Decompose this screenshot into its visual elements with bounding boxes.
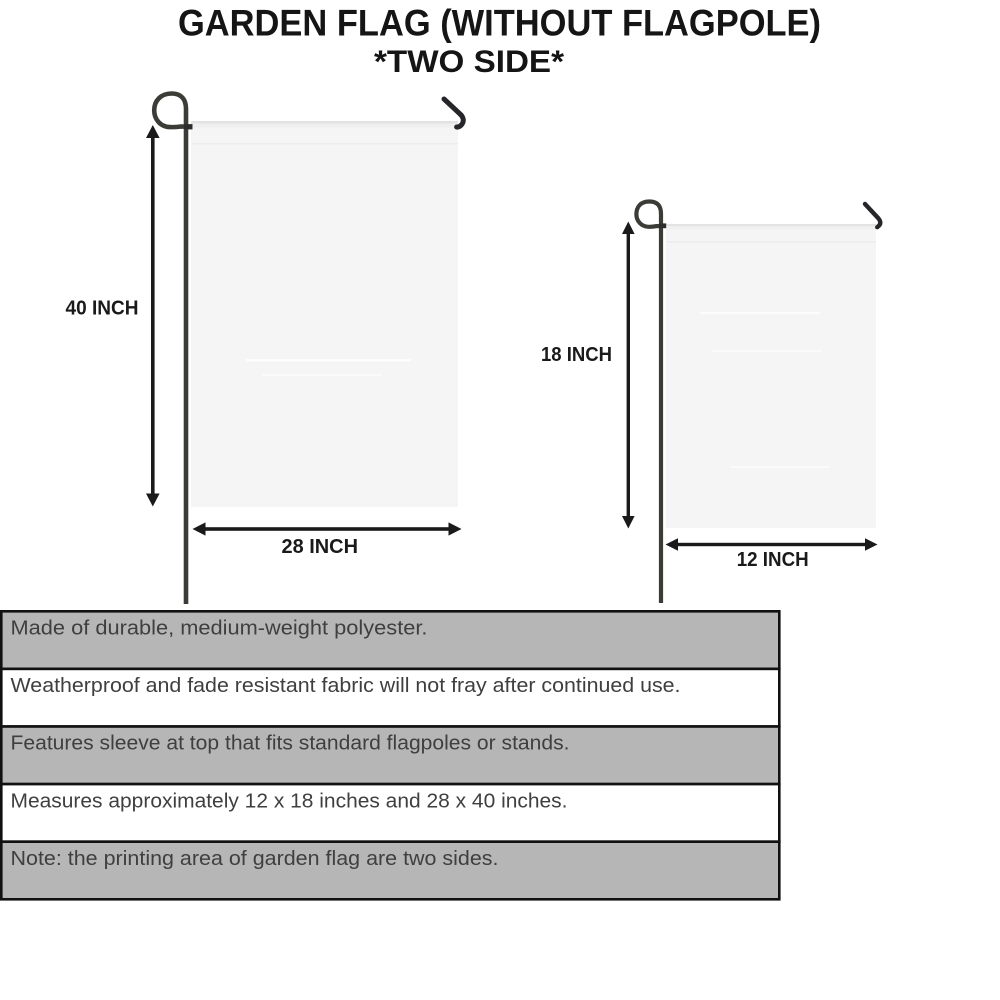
svg-text:Made of durable, medium-weight: Made of durable, medium-weight polyester…: [11, 617, 428, 640]
svg-text:12 INCH: 12 INCH: [737, 548, 809, 571]
svg-text:28 INCH: 28 INCH: [282, 535, 359, 558]
svg-text:40 INCH: 40 INCH: [66, 297, 139, 320]
svg-text:Measures approximately 12 x 18: Measures approximately 12 x 18 inches an…: [11, 789, 568, 812]
svg-text:Note: the printing area of gar: Note: the printing area of garden flag a…: [11, 847, 499, 870]
svg-text:*TWO SIDE*: *TWO SIDE*: [374, 43, 565, 79]
svg-text:18 INCH: 18 INCH: [541, 343, 612, 366]
svg-text:GARDEN FLAG (WITHOUT FLAGPOLE): GARDEN FLAG (WITHOUT FLAGPOLE): [178, 3, 821, 44]
svg-text:Features sleeve at top that fi: Features sleeve at top that fits standar…: [11, 732, 570, 755]
svg-text:Weatherproof and fade resistan: Weatherproof and fade resistant fabric w…: [11, 674, 681, 697]
